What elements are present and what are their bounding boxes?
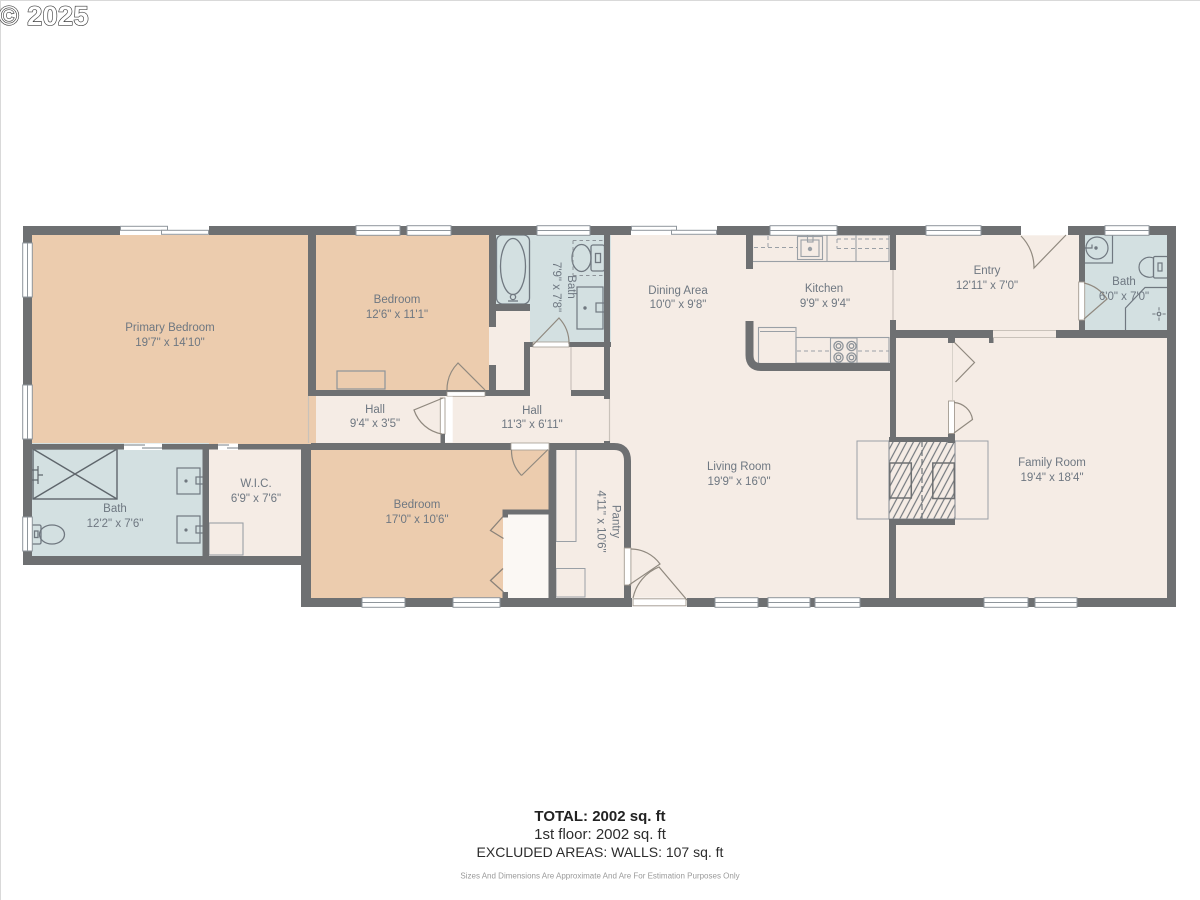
svg-text:9'4" x 3'5": 9'4" x 3'5" [350, 418, 400, 430]
svg-text:6'9" x 7'6": 6'9" x 7'6" [231, 493, 281, 505]
svg-text:Bath: Bath [565, 275, 577, 299]
svg-text:Bedroom: Bedroom [374, 294, 421, 306]
svg-text:6'0" x 7'0": 6'0" x 7'0" [1099, 291, 1149, 303]
svg-text:W.I.C.: W.I.C. [240, 478, 271, 490]
svg-text:10'0" x 9'8": 10'0" x 9'8" [650, 299, 707, 311]
svg-text:Living Room: Living Room [707, 461, 771, 473]
svg-text:1st floor: 2002 sq. ft: 1st floor: 2002 sq. ft [534, 826, 667, 843]
svg-text:Kitchen: Kitchen [805, 283, 843, 295]
svg-text:Bedroom: Bedroom [394, 499, 441, 511]
svg-text:Pantry: Pantry [610, 505, 622, 538]
svg-text:Hall: Hall [522, 405, 542, 417]
svg-text:12'2" x 7'6": 12'2" x 7'6" [87, 518, 144, 530]
svg-text:EXCLUDED AREAS: WALLS: 107 sq.: EXCLUDED AREAS: WALLS: 107 sq. ft [477, 844, 724, 860]
svg-text:Entry: Entry [974, 265, 1001, 277]
svg-text:© 2025: © 2025 [0, 1, 89, 31]
svg-text:Dining Area: Dining Area [648, 285, 708, 297]
svg-text:12'11" x 7'0": 12'11" x 7'0" [956, 280, 1018, 292]
svg-text:9'9" x 9'4": 9'9" x 9'4" [800, 298, 850, 310]
svg-text:19'4" x 18'4": 19'4" x 18'4" [1020, 472, 1083, 484]
svg-text:11'3" x 6'11": 11'3" x 6'11" [501, 419, 562, 431]
svg-text:19'9" x 16'0": 19'9" x 16'0" [707, 476, 770, 488]
svg-text:12'6" x 11'1": 12'6" x 11'1" [366, 309, 428, 321]
svg-text:17'0" x 10'6": 17'0" x 10'6" [385, 514, 448, 526]
svg-text:Bath: Bath [1112, 276, 1136, 288]
svg-text:TOTAL: 2002 sq. ft: TOTAL: 2002 sq. ft [534, 808, 665, 825]
svg-text:7'9" x 7'8": 7'9" x 7'8" [550, 262, 562, 312]
svg-text:Primary Bedroom: Primary Bedroom [125, 322, 214, 334]
svg-text:Hall: Hall [365, 404, 385, 416]
svg-text:4'11" x 10'6": 4'11" x 10'6" [595, 490, 607, 552]
svg-text:Family Room: Family Room [1018, 457, 1086, 469]
svg-text:19'7" x 14'10": 19'7" x 14'10" [135, 337, 204, 349]
svg-text:Sizes And Dimensions Are Appro: Sizes And Dimensions Are Approximate And… [460, 872, 739, 881]
svg-text:Bath: Bath [103, 503, 127, 515]
